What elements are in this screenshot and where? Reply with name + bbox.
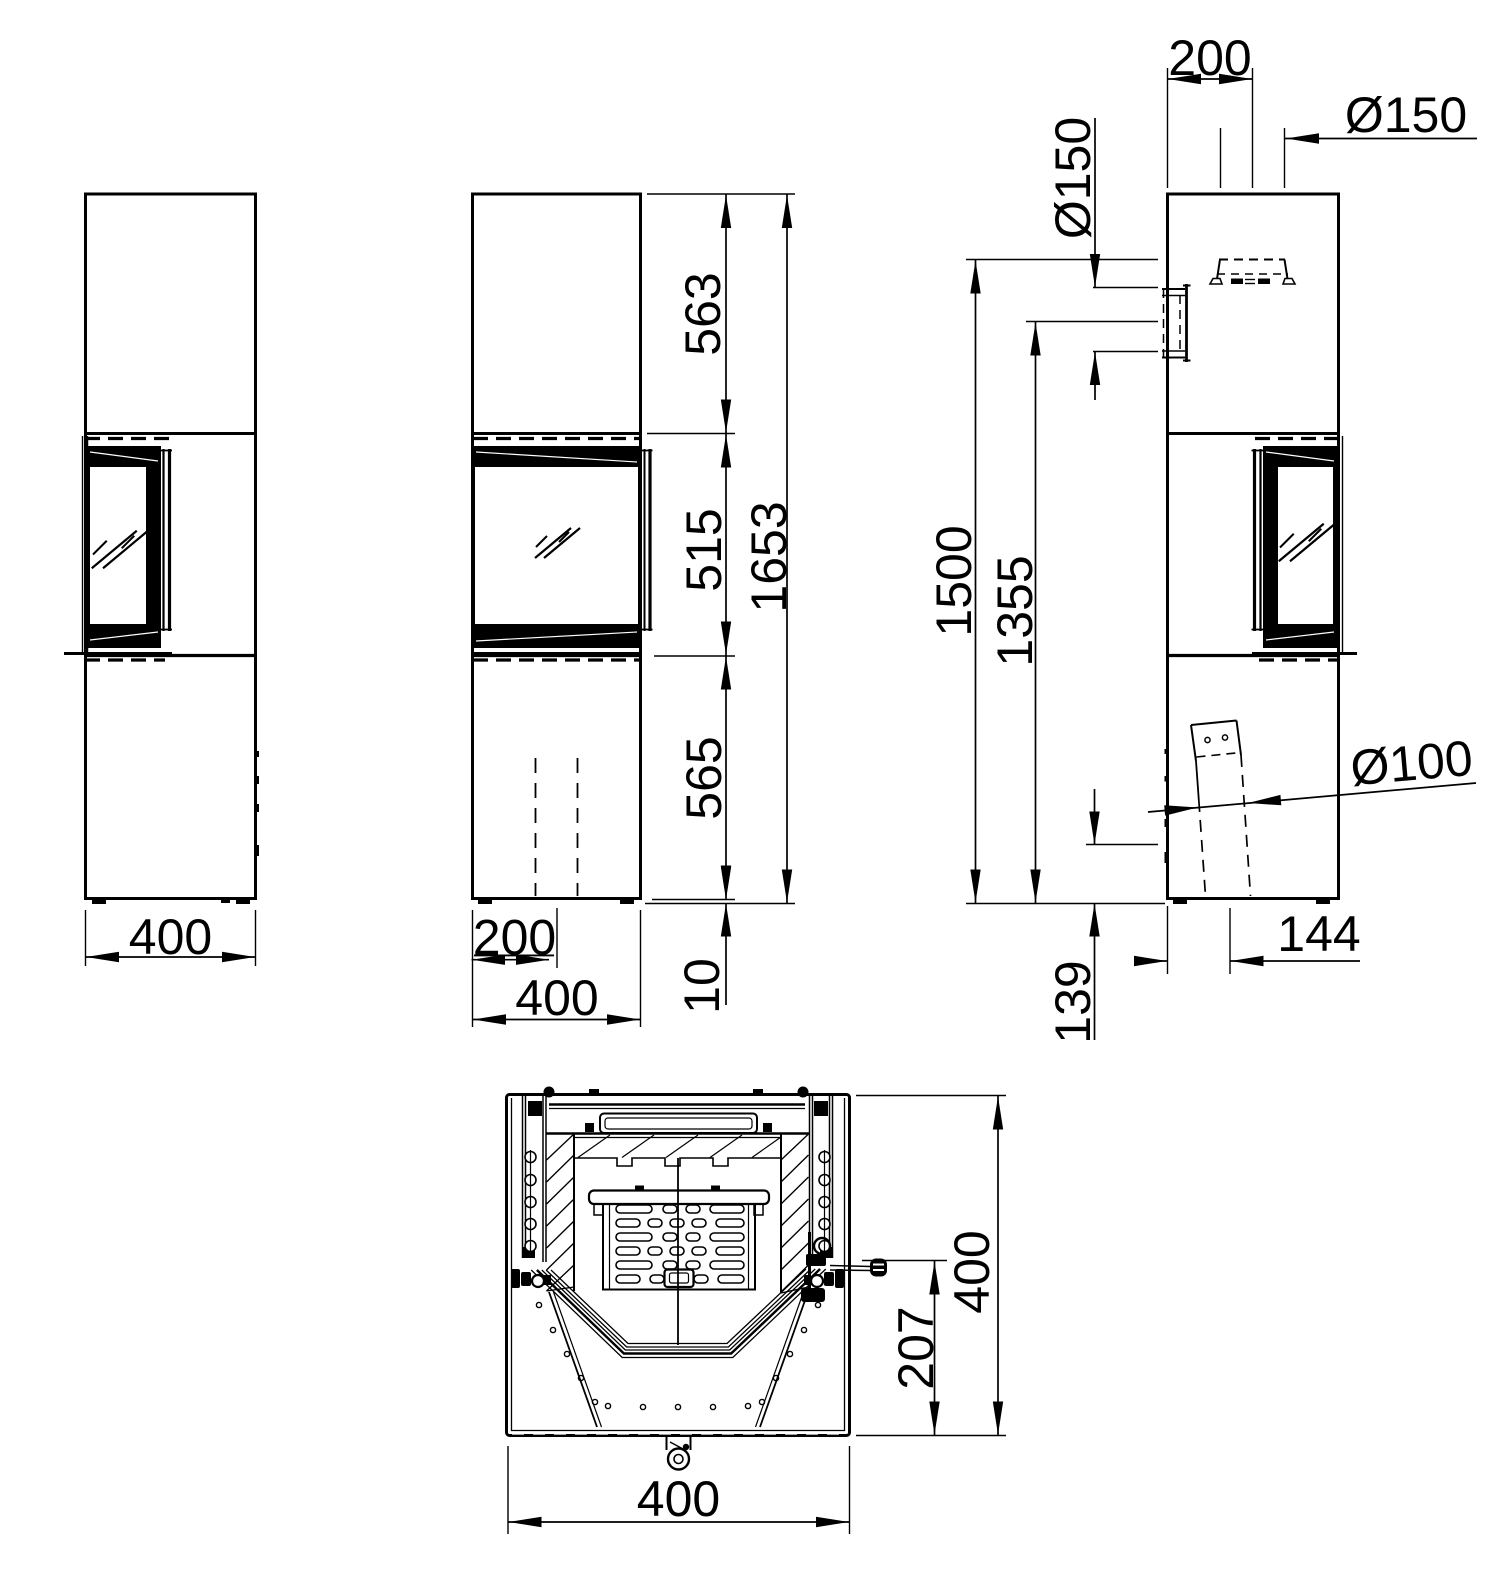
svg-text:400: 400 (637, 1471, 720, 1527)
svg-text:139: 139 (1045, 960, 1101, 1043)
svg-text:Ø100: Ø100 (1348, 730, 1475, 796)
svg-text:515: 515 (676, 508, 732, 591)
svg-text:Ø150: Ø150 (1345, 87, 1467, 143)
svg-text:200: 200 (473, 910, 556, 966)
svg-text:1500: 1500 (926, 525, 982, 636)
svg-text:1355: 1355 (987, 555, 1043, 666)
svg-text:563: 563 (675, 272, 731, 355)
svg-text:Ø150: Ø150 (1045, 117, 1101, 239)
svg-text:400: 400 (944, 1230, 1000, 1313)
svg-text:565: 565 (676, 736, 732, 819)
svg-text:400: 400 (515, 970, 598, 1026)
svg-text:1653: 1653 (741, 501, 797, 612)
svg-text:200: 200 (1168, 30, 1251, 86)
svg-text:400: 400 (129, 909, 212, 965)
svg-text:10: 10 (674, 958, 730, 1014)
svg-text:144: 144 (1277, 906, 1360, 962)
svg-text:207: 207 (888, 1306, 944, 1389)
